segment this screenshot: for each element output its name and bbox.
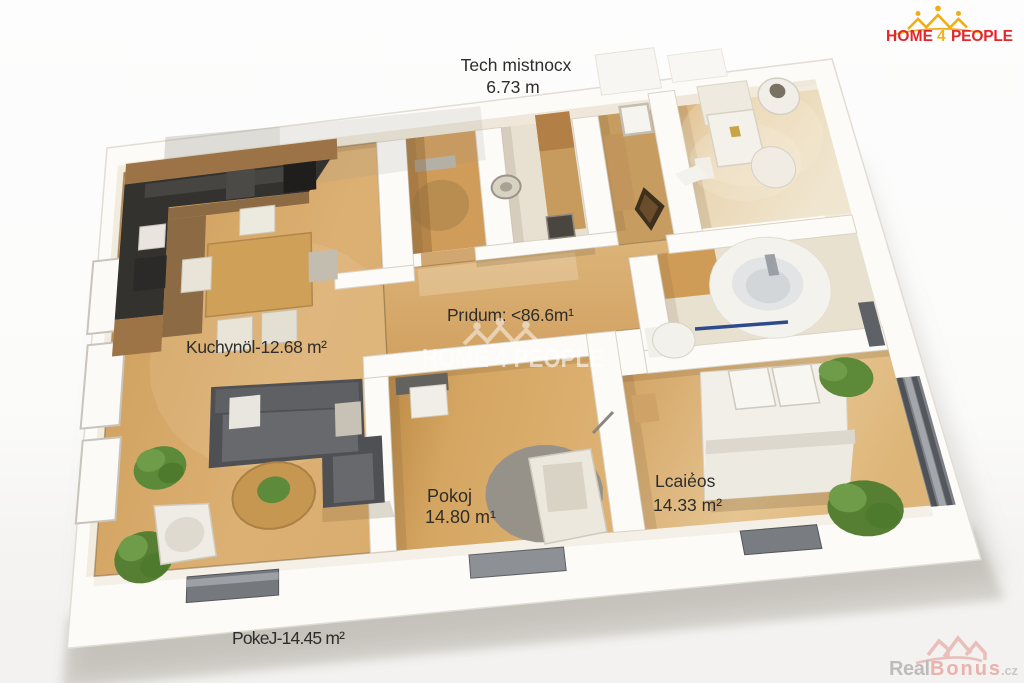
svg-text:PokeJ-14.45 m²: PokeJ-14.45 m² [232,628,345,648]
svg-text:Bonus: Bonus [930,658,1000,680]
svg-text:Real: Real [889,658,930,680]
svg-text:Pokoj: Pokoj [427,486,472,506]
svg-text:Lcaié̇os: Lcaié̇os [655,471,716,491]
svg-text:Tech mistnocx: Tech mistnocx [461,55,572,75]
svg-text:6.73 m: 6.73 m [486,77,540,97]
svg-text:Prıdum: <86.6m¹: Prıdum: <86.6m¹ [447,305,574,325]
svg-text:HOME: HOME [886,28,933,45]
svg-text:.cz: .cz [1001,663,1019,678]
svg-text:14.80 m¹: 14.80 m¹ [425,507,496,527]
svg-text:HOME 4 PEOPLE: HOME 4 PEOPLE [422,343,604,373]
svg-text:PEOPLE: PEOPLE [951,28,1013,45]
svg-text:14.33 m²: 14.33 m² [653,495,722,515]
svg-text:Kuchynöl-12.68 m²: Kuchynöl-12.68 m² [186,337,327,357]
svg-text:4: 4 [937,28,946,45]
